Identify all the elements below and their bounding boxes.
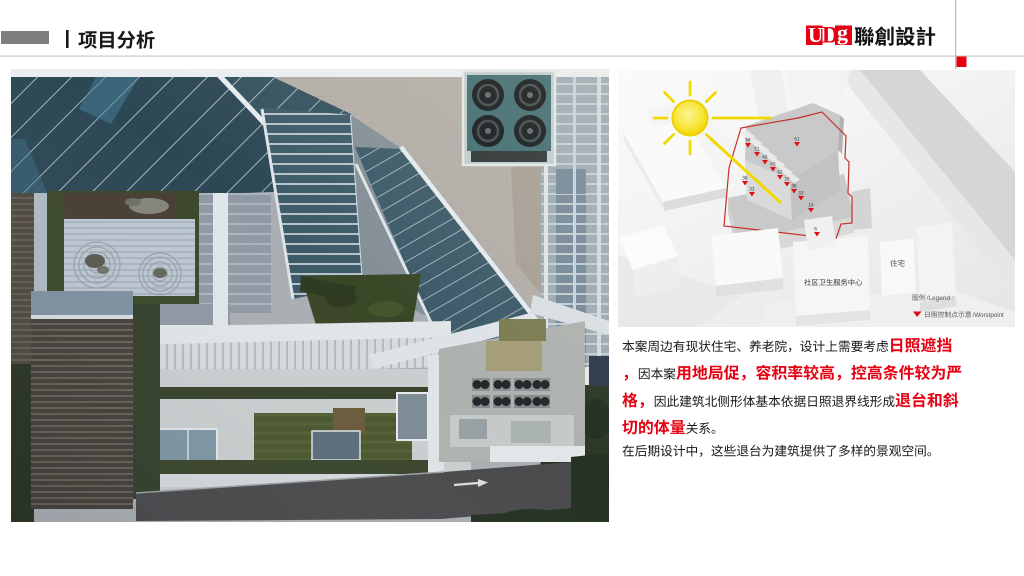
svg-text:/Legend :: /Legend : [927, 295, 954, 302]
svg-text:g: g [837, 20, 848, 45]
svg-text:/Worstpoint: /Worstpoint [973, 312, 1004, 319]
svg-text:U: U [808, 23, 823, 47]
